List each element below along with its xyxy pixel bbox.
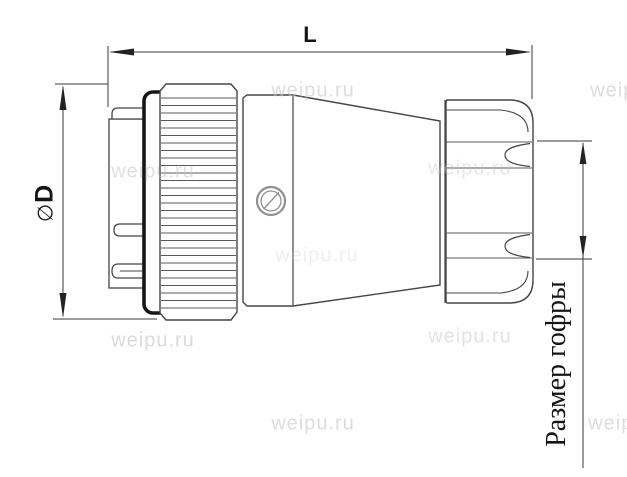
top-lug (112, 108, 146, 119)
arrowhead-down (580, 236, 587, 258)
ring-outline (160, 84, 237, 320)
technical-drawing-canvas: weipu.ru weipu.ru weipu.ru weipu.ru weip… (0, 0, 627, 477)
length-dimension-label: L (303, 22, 316, 48)
set-screw (257, 187, 285, 215)
arrowhead-down (60, 293, 67, 318)
housing-body (109, 119, 145, 288)
corrugation-size-label: Размер гофры (541, 281, 573, 447)
nut-outline (446, 100, 533, 303)
connector-body (243, 95, 440, 306)
diameter-symbol: ∅ (35, 203, 58, 222)
body-outline (243, 95, 440, 306)
arrowhead-up (60, 85, 67, 110)
arrowhead-right (506, 49, 531, 56)
rear-housing (109, 108, 147, 288)
coupling-ring (160, 84, 237, 320)
connector-drawing (0, 0, 627, 477)
middle-pin (114, 224, 147, 236)
cable-gland-nut (445, 100, 533, 303)
arrowhead-up (580, 142, 587, 164)
diameter-letter: D (31, 184, 59, 203)
diameter-dimension-label: ∅D (31, 184, 60, 222)
arrowhead-left (109, 49, 134, 56)
